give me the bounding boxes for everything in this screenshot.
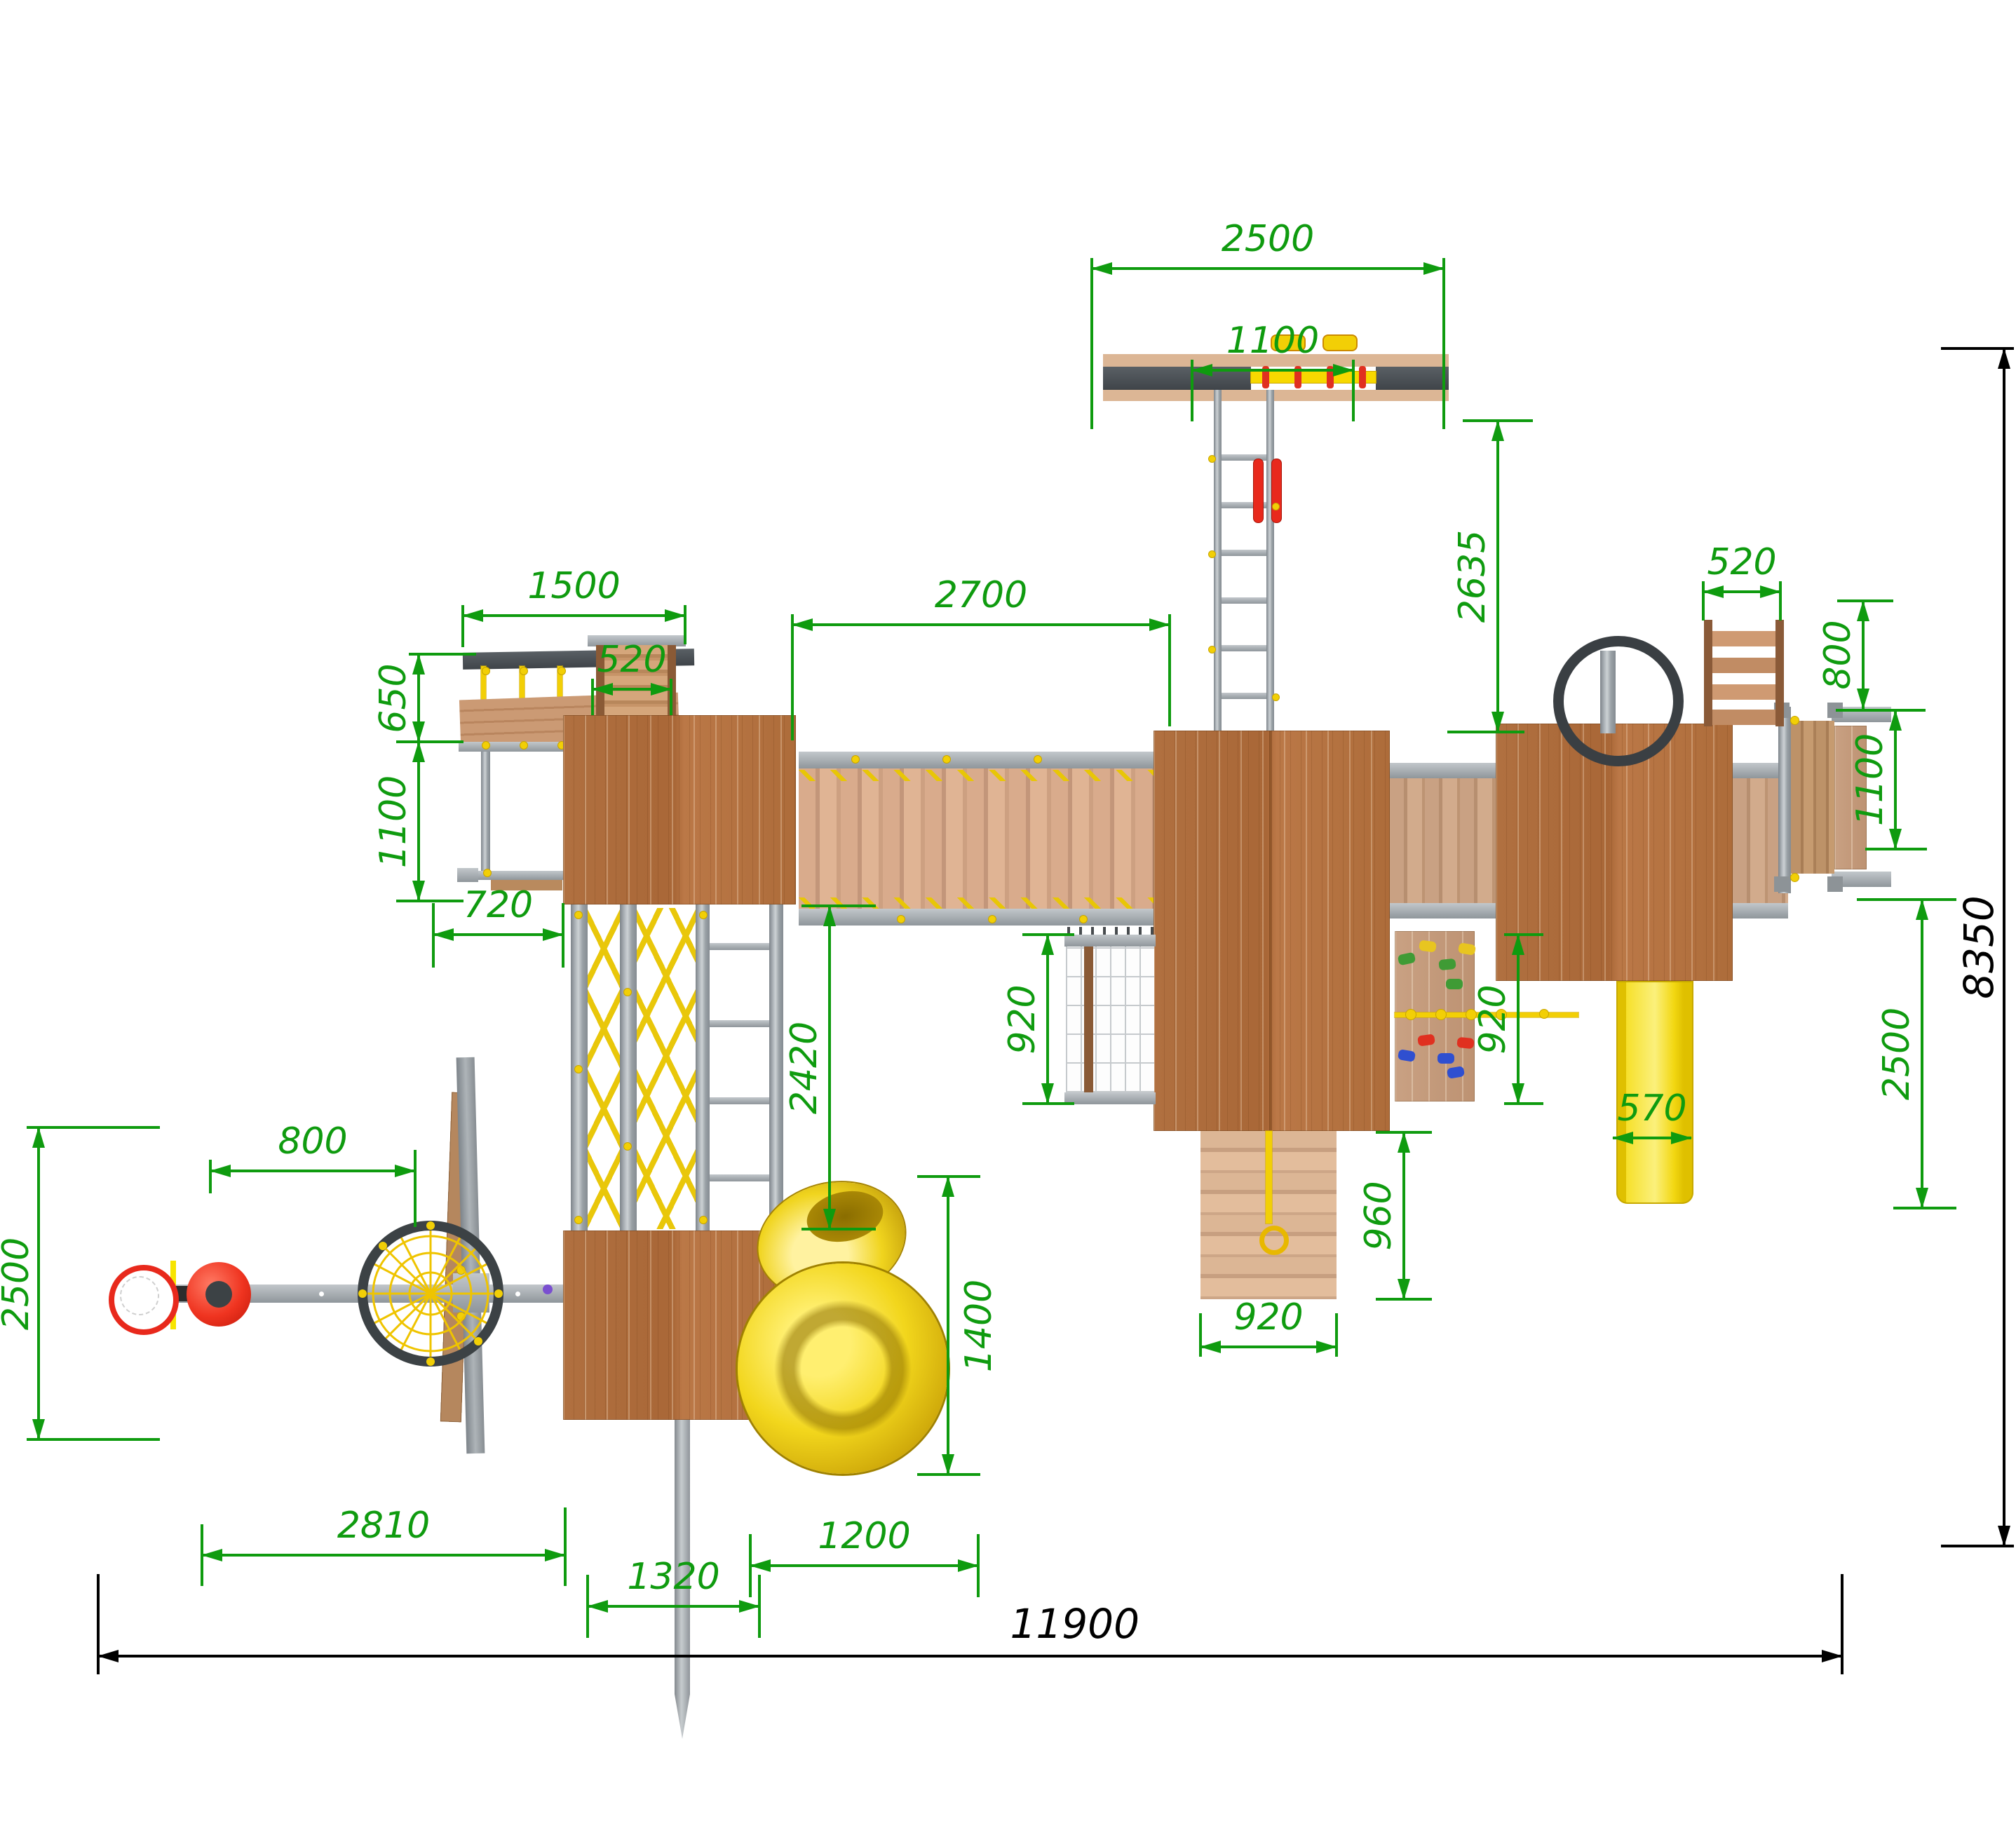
right-ladder-rung (1712, 631, 1775, 646)
net-wood-post (1084, 947, 1093, 1092)
climb-ladder-rail (769, 904, 783, 1231)
walkway2-rail-bottom (1733, 903, 1788, 918)
ladder-red-grip (1272, 459, 1281, 522)
swing-beam-right (1376, 367, 1449, 390)
xclimb-post (620, 904, 637, 1231)
swing-crossbar (1251, 372, 1376, 383)
spiral-slide-coil (766, 1292, 920, 1446)
beam-hole (515, 1292, 520, 1296)
platform-post (1827, 876, 1843, 892)
net-climber (1066, 947, 1154, 1092)
climb-ladder-rail (696, 904, 710, 1231)
walkway1-rail-bottom (1390, 903, 1496, 918)
platform-post (1774, 876, 1790, 892)
bridge-rope-lashing-top (799, 770, 1154, 781)
ramp-rope-loop (1259, 1226, 1289, 1255)
net-hooks (1067, 927, 1156, 935)
climb-hold (1419, 940, 1437, 952)
purple-knot (543, 1284, 553, 1294)
monkey-ladder-rung (1222, 550, 1266, 556)
swing-seat (1322, 334, 1358, 351)
right-ladder-rung (1712, 710, 1775, 725)
right-ladder-rung (1712, 684, 1775, 700)
net-rail-top (1064, 935, 1156, 947)
monkey-ladder-rung (1222, 645, 1266, 651)
walkway1-rail-top (1390, 763, 1496, 778)
climb-ladder-rung (710, 1020, 769, 1027)
climb-ladder-rung (710, 943, 769, 950)
beam-hole (319, 1292, 324, 1296)
bridge-rail-bottom (799, 909, 1154, 926)
playground-plan-drawing: 2500 1100 2635 1500 520 2700 650 (0, 0, 2016, 1837)
upper-left-tower-roof (563, 715, 796, 904)
net-rail-bottom (1064, 1092, 1156, 1104)
monkey-ladder-rung (1222, 597, 1266, 604)
right-ladder-rung (1712, 658, 1775, 673)
spinner-web (356, 1219, 505, 1368)
right-ladder-rail (1704, 620, 1712, 726)
monkey-ladder-rung (1222, 693, 1266, 699)
steering-ring (1553, 636, 1684, 766)
monkey-ladder-rail-right (1266, 390, 1274, 731)
hang-frame-corner (457, 868, 478, 882)
ladder-red-grip (1254, 459, 1263, 522)
centre-tower-roof-seam (1269, 731, 1272, 1131)
basketball-hoop-net (120, 1276, 159, 1315)
ramp-rope (1266, 1131, 1272, 1223)
right-ladder-rail (1775, 620, 1784, 726)
xclimb-ropes-bay2 (637, 908, 696, 1229)
hang-frame-post (481, 752, 490, 872)
swing-hook (1359, 366, 1366, 388)
climb-ladder-rung (710, 1174, 769, 1181)
swing-beam-board-back (1103, 390, 1449, 401)
climb-hold (1437, 1053, 1454, 1064)
tether-ball-hub (205, 1281, 232, 1308)
bridge-planks (799, 768, 1154, 909)
climb-hold (1446, 979, 1463, 989)
platform-deck (1791, 721, 1834, 874)
xclimb-ropes-bay1 (588, 908, 620, 1229)
climb-ladder-rung (710, 1097, 769, 1104)
monkey-ladder-rail-left (1214, 390, 1222, 731)
walkway1-planks (1390, 778, 1496, 903)
platform-rail-left (1778, 707, 1791, 893)
climb-hold (1438, 958, 1456, 970)
